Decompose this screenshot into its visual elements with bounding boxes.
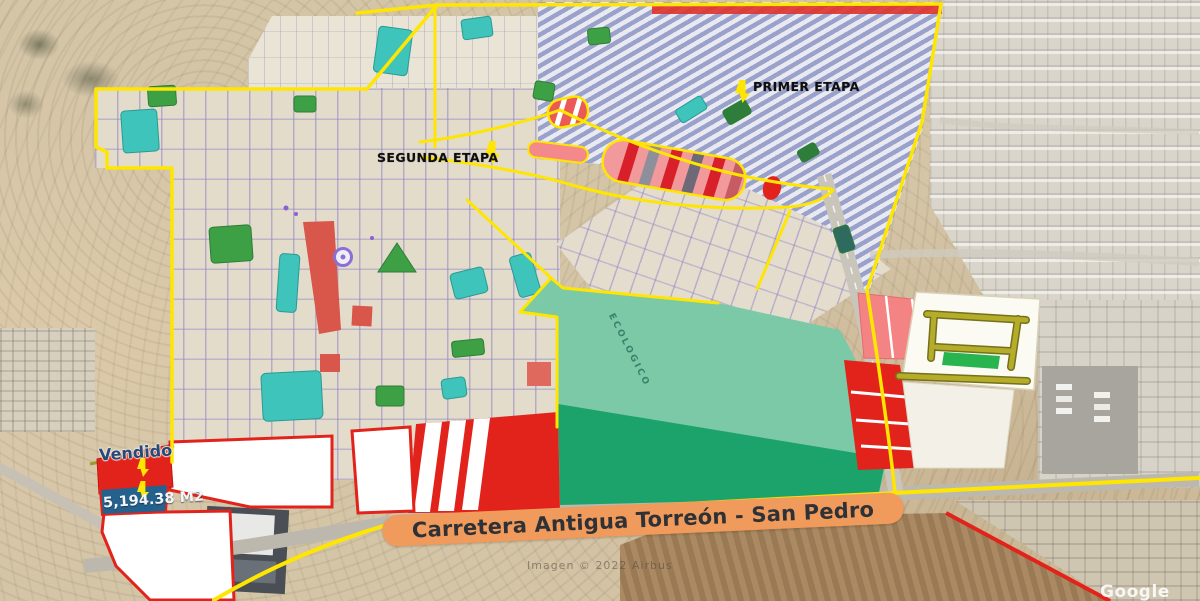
red-corridor [303,221,551,386]
satellite-master-plan-map: PRIMER ETAPA SEGUNDA ETAPA Vendido 5,194… [0,0,1200,601]
map-provider-watermark: Google [1100,582,1170,601]
parcel-white-outlined [352,427,414,513]
parcel-light [903,382,1014,468]
parcel-white-outlined [102,511,234,600]
parcel-pink-strip [527,140,589,163]
label-segunda-etapa: SEGUNDA ETAPA [377,150,498,165]
red-strip-north [652,5,942,14]
imagery-credit: Imagen © 2022 Airbus [527,559,673,572]
green-reserve [520,278,888,505]
red-property-line [946,513,1110,601]
parcel-red-small [760,174,784,202]
label-primer-etapa: PRIMER ETAPA [753,79,860,94]
parcels-east [844,292,1040,470]
